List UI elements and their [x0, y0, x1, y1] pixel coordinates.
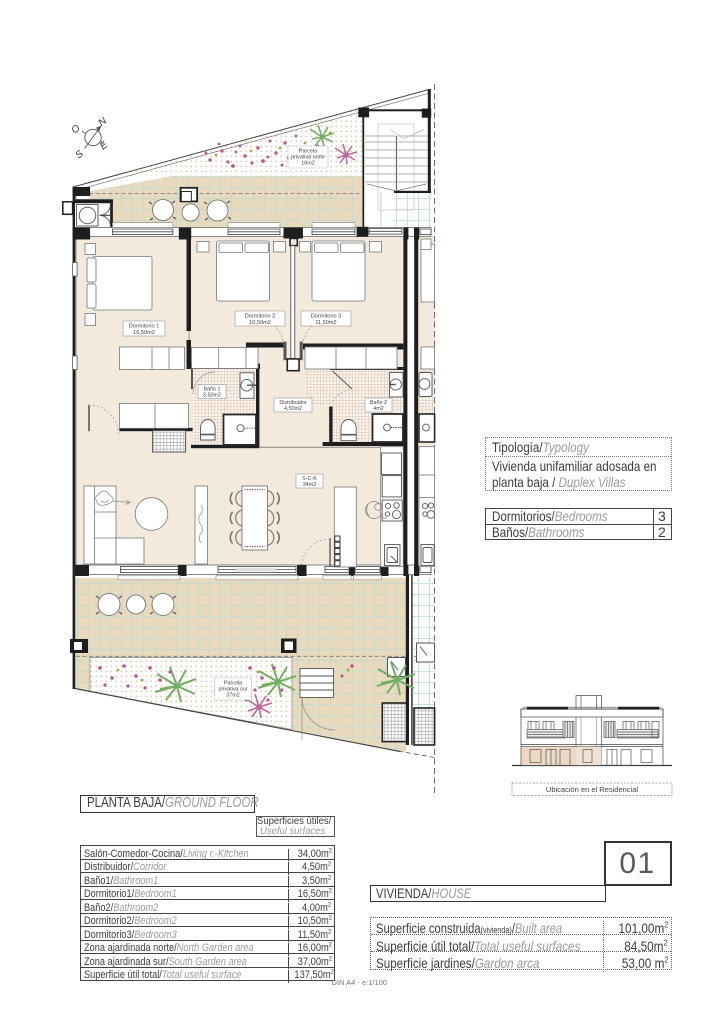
svg-text:Dormitorio 3: Dormitorio 3	[311, 314, 341, 320]
svg-text:11,50m2: 11,50m2	[315, 320, 336, 326]
svg-text:Dormitorio 1: Dormitorio 1	[129, 324, 159, 330]
svg-text:4,50m2: 4,50m2	[284, 406, 302, 412]
svg-text:10,50m2: 10,50m2	[249, 320, 271, 326]
svg-text:16,50m2: 16,50m2	[133, 330, 155, 336]
svg-text:37m2: 37m2	[226, 693, 240, 699]
svg-text:16m2: 16m2	[301, 161, 315, 167]
svg-text:3,50m2: 3,50m2	[203, 393, 221, 399]
svg-text:S: S	[74, 148, 86, 161]
svg-text:Ubicación en el Residencial: Ubicación en el Residencial	[546, 785, 638, 794]
svg-text:O: O	[70, 123, 83, 137]
svg-text:4m2: 4m2	[373, 406, 384, 412]
svg-text:E: E	[98, 139, 110, 152]
svg-text:34m2: 34m2	[303, 482, 317, 488]
svg-text:Dormitorio 2: Dormitorio 2	[245, 314, 275, 320]
